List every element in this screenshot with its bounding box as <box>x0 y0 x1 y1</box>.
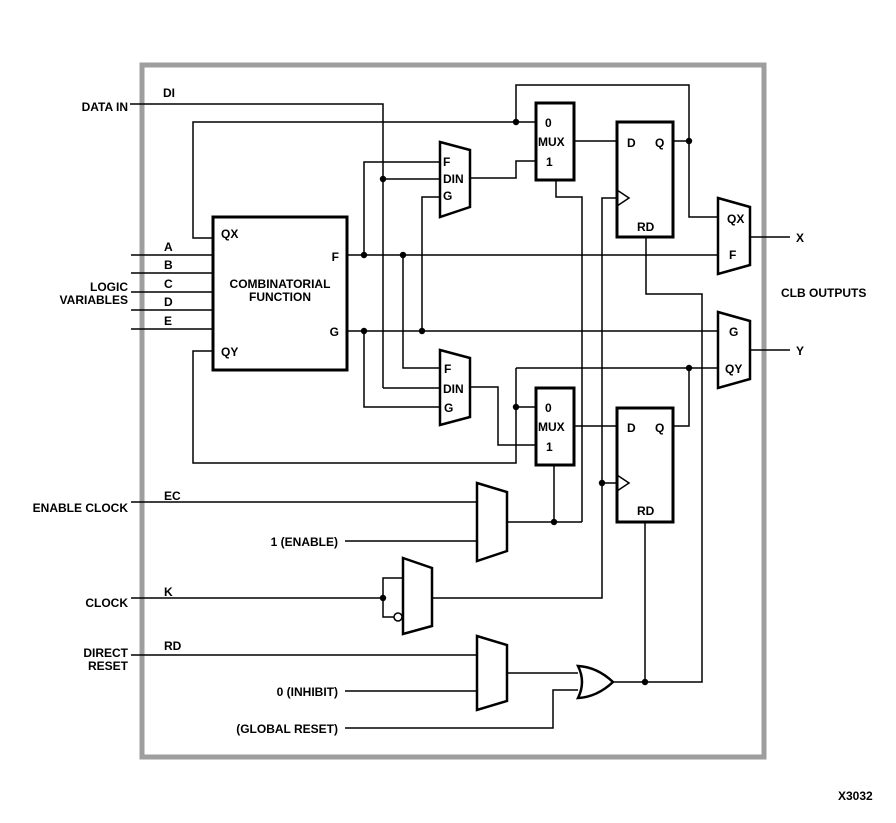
label-logic: LOGIC <box>90 280 128 294</box>
g-branch-up <box>422 197 440 331</box>
reset-mux <box>477 636 507 710</box>
clb-logic-diagram-page: DATA INDILOGICVARIABLESABCDEQXQYFGCOMBIN… <box>0 0 896 823</box>
label-lff-d: D <box>627 421 636 435</box>
label-1-enable: 1 (ENABLE) <box>271 535 338 549</box>
label-reset: RESET <box>88 659 129 673</box>
upper-dinmux-out <box>470 161 536 178</box>
label-lff-rd: RD <box>637 504 655 518</box>
global-reset-line <box>345 690 578 728</box>
y-output-mux <box>718 312 750 388</box>
junction-dot <box>599 480 605 486</box>
junction-dot <box>361 252 367 258</box>
label-a: A <box>164 240 173 254</box>
label-g-out: G <box>330 325 339 339</box>
label-direct: DIRECT <box>83 646 128 660</box>
label-udm-din: DIN <box>443 172 464 186</box>
junction-dot <box>400 252 406 258</box>
label-e: E <box>164 314 172 328</box>
upper-mux-select <box>556 180 582 522</box>
label-qx-in: QX <box>221 227 238 241</box>
label-xmux-qx: QX <box>727 212 744 226</box>
clock-mux <box>403 558 432 634</box>
label-udm-g: G <box>443 189 452 203</box>
label-umux-mux: MUX <box>538 135 565 149</box>
label-b: B <box>164 258 173 272</box>
label-clb-outputs: CLB OUTPUTS <box>781 286 866 300</box>
label-combinatorial: COMBINATORIAL <box>230 277 331 291</box>
label-global-reset: (GLOBAL RESET) <box>236 722 338 736</box>
label-ymux-g: G <box>729 325 738 339</box>
label-d: D <box>164 295 173 309</box>
ec-mux <box>477 483 507 561</box>
label-enable-clock: ENABLE CLOCK <box>33 501 129 515</box>
label-qy-in: QY <box>221 345 238 359</box>
q-to-x-outmux <box>689 141 718 217</box>
label-uff-rd: RD <box>637 220 655 234</box>
label-di: DI <box>163 86 175 100</box>
junction-dot <box>419 328 425 334</box>
k-branch-inverted <box>383 598 394 617</box>
label-uff-q: Q <box>655 136 664 150</box>
label-uff-d: D <box>627 136 636 150</box>
junction-dot <box>380 595 386 601</box>
label-c: C <box>164 277 173 291</box>
label-function: FUNCTION <box>249 290 311 304</box>
label-lmux-mux: MUX <box>538 420 565 434</box>
f-branch-up <box>364 162 440 255</box>
label-k: K <box>164 585 173 599</box>
label-udm-f: F <box>443 155 450 169</box>
junction-dot <box>642 679 648 685</box>
label-xmux-f: F <box>729 248 736 262</box>
label-umux-1: 1 <box>546 155 553 169</box>
reset-or-gate <box>578 666 613 698</box>
label-variables: VARIABLES <box>60 293 128 307</box>
lower-dinmux-out <box>470 387 536 445</box>
clb-logic-diagram: DATA INDILOGICVARIABLESABCDEQXQYFGCOMBIN… <box>0 0 896 823</box>
label-y: Y <box>796 344 804 358</box>
lower-ff-q-out <box>673 368 689 426</box>
label-lmux-0: 0 <box>545 401 552 415</box>
label-umux-0: 0 <box>545 116 552 130</box>
k-branch-true <box>383 578 403 598</box>
label-rd: RD <box>164 639 182 653</box>
x-output-mux <box>718 198 750 274</box>
label-ldm-f: F <box>444 362 451 376</box>
label-data-in: DATA IN <box>82 100 128 114</box>
junction-dot <box>513 404 519 410</box>
label-ldm-din: DIN <box>443 382 464 396</box>
label-ec: EC <box>164 489 181 503</box>
label-figure-code: X3032 <box>838 789 873 803</box>
junction-dot <box>380 176 386 182</box>
junction-dot <box>361 328 367 334</box>
label-clock: CLOCK <box>85 596 128 610</box>
label-0-inhibit: 0 (INHIBIT) <box>277 685 338 699</box>
junction-dot <box>551 519 557 525</box>
label-f-out: F <box>332 250 339 264</box>
label-x: X <box>796 231 804 245</box>
label-ldm-g: G <box>444 401 453 415</box>
label-ymux-qy: QY <box>725 362 742 376</box>
clock-invert-bubble <box>394 613 402 621</box>
label-lmux-1: 1 <box>546 440 553 454</box>
g-branch-down <box>364 331 440 407</box>
label-lff-q: Q <box>655 421 664 435</box>
junction-dot <box>686 138 692 144</box>
junction-dot <box>686 365 692 371</box>
junction-dot <box>513 119 519 125</box>
